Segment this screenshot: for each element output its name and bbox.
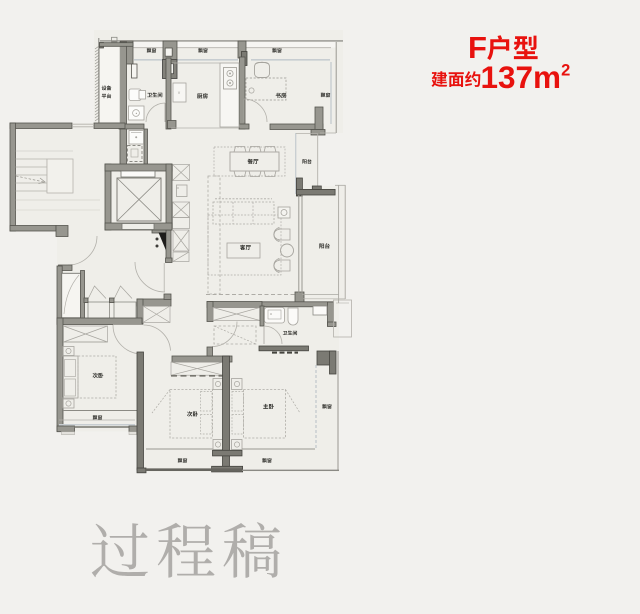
svg-text:137m2: 137m2 — [481, 59, 571, 95]
